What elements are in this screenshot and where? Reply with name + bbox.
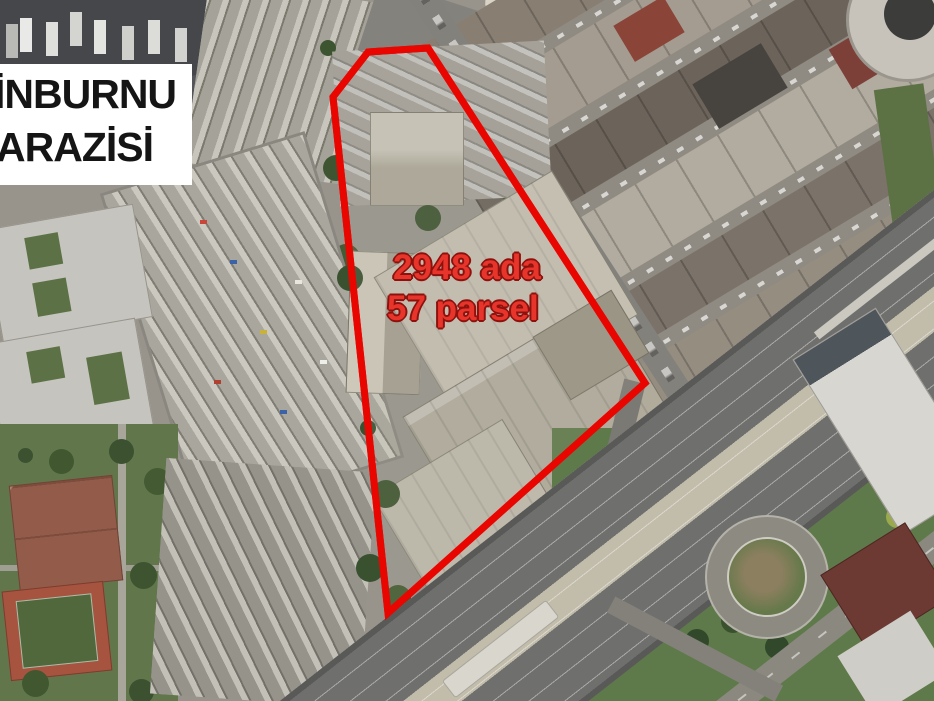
parcel-label-line1: 2948 ada xyxy=(393,247,583,288)
title-line1: İNBURNU xyxy=(0,69,192,119)
trees xyxy=(360,420,376,436)
title-box: İNBURNU ARAZİSİ xyxy=(0,64,192,185)
parcel-label-line2: 57 parsel xyxy=(387,288,583,329)
red-roof-building xyxy=(9,475,124,591)
satellite-map-screenshot: 2948 ada 57 parsel İNBURNU ARAZİSİ xyxy=(0,0,934,701)
metrobus-station xyxy=(442,600,560,699)
green-courtyard xyxy=(86,352,130,406)
warehouse-roof xyxy=(370,112,464,206)
parked-cars xyxy=(200,220,207,224)
roundabout-island xyxy=(727,537,807,617)
tennis-court-surface xyxy=(16,593,99,669)
green-courtyard xyxy=(32,277,71,316)
title-line2: ARAZİSİ xyxy=(0,122,192,172)
tennis-court xyxy=(2,581,113,681)
parked-trucks xyxy=(20,18,32,52)
green-courtyard xyxy=(26,346,65,383)
green-courtyard xyxy=(24,232,63,269)
parcel-label: 2948 ada 57 parsel xyxy=(393,247,583,329)
trees xyxy=(18,448,33,463)
